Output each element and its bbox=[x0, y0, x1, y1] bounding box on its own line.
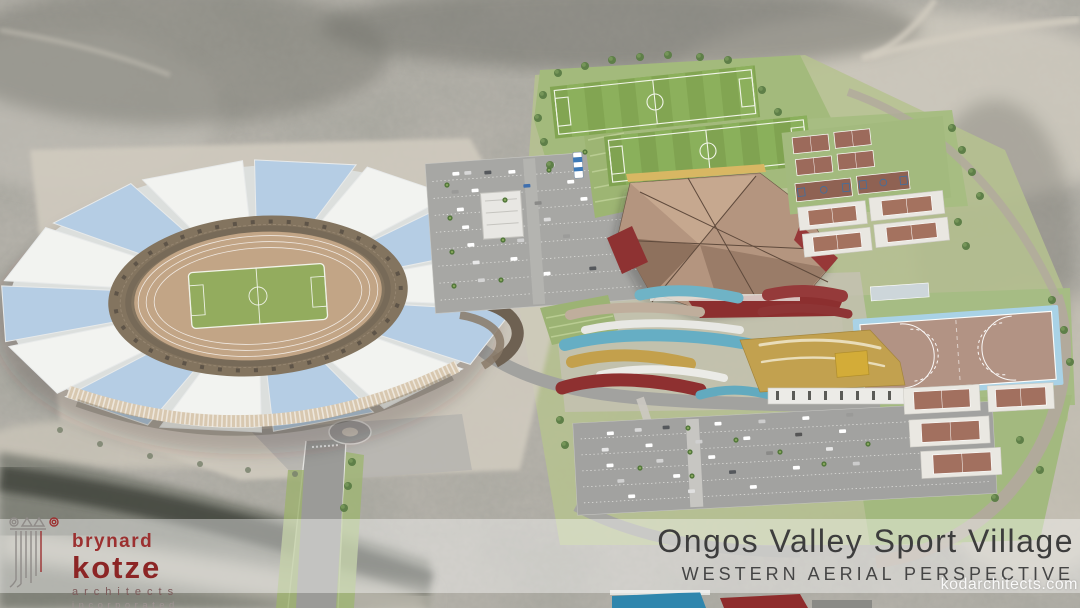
architect-logo: brynard kotze architects incorporated bbox=[8, 514, 179, 608]
stadium-pitch bbox=[188, 263, 328, 328]
logo-descriptor-2: incorporated bbox=[72, 601, 179, 608]
project-title: Ongos Valley Sport Village bbox=[657, 523, 1074, 560]
clubhouse-white-buildings bbox=[768, 388, 918, 404]
logo-name-first: brynard bbox=[72, 532, 179, 551]
yellow-building bbox=[835, 351, 869, 378]
shuttle-bus bbox=[573, 152, 584, 179]
logo-name-last: kotze bbox=[72, 552, 179, 583]
rendering-page: brynard kotze architects incorporated On… bbox=[0, 0, 1080, 608]
courts-complex bbox=[782, 116, 956, 258]
website-watermark: kodarchitects.com bbox=[941, 576, 1078, 594]
logo-descriptor: architects bbox=[72, 587, 179, 598]
column-logo-icon bbox=[8, 514, 66, 588]
parkade-building bbox=[480, 191, 523, 240]
